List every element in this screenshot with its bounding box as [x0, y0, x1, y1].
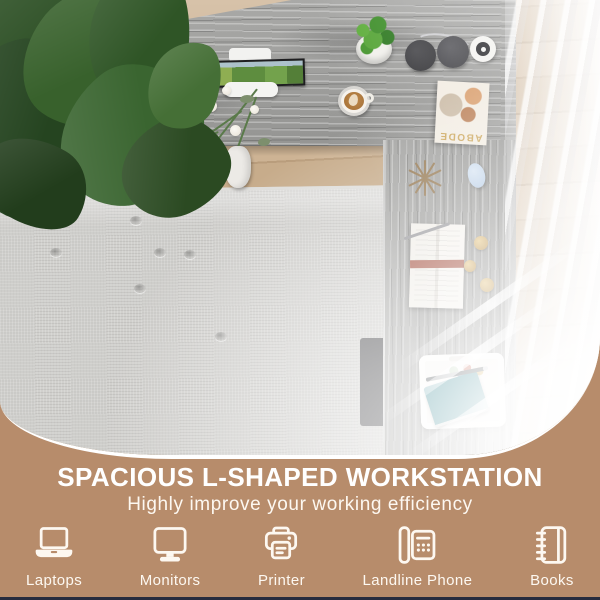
books-icon [530, 523, 574, 567]
product-photo: ABODE [0, 0, 600, 455]
rug-dimple [184, 250, 196, 259]
feature-label: Laptops [26, 572, 82, 589]
feature-landline-phone: Landline Phone [363, 523, 473, 589]
white-flower [230, 125, 241, 136]
rug-dimple [50, 248, 62, 257]
book-ribbon [410, 260, 464, 268]
banner-subtitle: Highly improve your working efficiency [0, 494, 600, 516]
rug-dimple [215, 332, 227, 341]
cup-handle [364, 93, 374, 103]
headphones-earcup-left [405, 40, 436, 71]
gold-ornament [474, 236, 488, 250]
feature-label: Monitors [140, 572, 201, 589]
magazine: ABODE [434, 81, 489, 146]
feature-laptops: Laptops [26, 523, 82, 589]
feature-label: Books [530, 572, 574, 589]
feature-label: Printer [258, 572, 305, 589]
gold-ornament [480, 278, 494, 292]
feature-label: Landline Phone [363, 572, 473, 589]
feature-monitors: Monitors [140, 523, 201, 589]
landline-phone-icon [395, 523, 439, 567]
banner-title: SPACIOUS L-SHAPED WORKSTATION [0, 462, 600, 493]
feature-books: Books [530, 523, 574, 589]
monitor-icon [148, 523, 192, 567]
pen-cup [470, 36, 496, 62]
headphones-earcup-right [437, 36, 469, 68]
rug-dimple [130, 216, 142, 225]
rug-dimple [154, 248, 166, 257]
white-flower [222, 86, 231, 95]
pen-cup-core [481, 47, 486, 52]
feature-list: Laptops Monitors [26, 523, 574, 589]
magazine-title: ABODE [435, 130, 488, 144]
sheer-curtain [505, 0, 600, 455]
white-flower [250, 105, 259, 114]
product-image-page: ABODE [0, 0, 600, 600]
gold-ornament [464, 260, 476, 272]
open-book [409, 223, 465, 308]
laptop-icon [32, 523, 76, 567]
potted-plant-foliage [348, 12, 398, 58]
printer-icon [259, 523, 303, 567]
rug-dimple [134, 284, 146, 293]
feature-printer: Printer [258, 523, 305, 589]
